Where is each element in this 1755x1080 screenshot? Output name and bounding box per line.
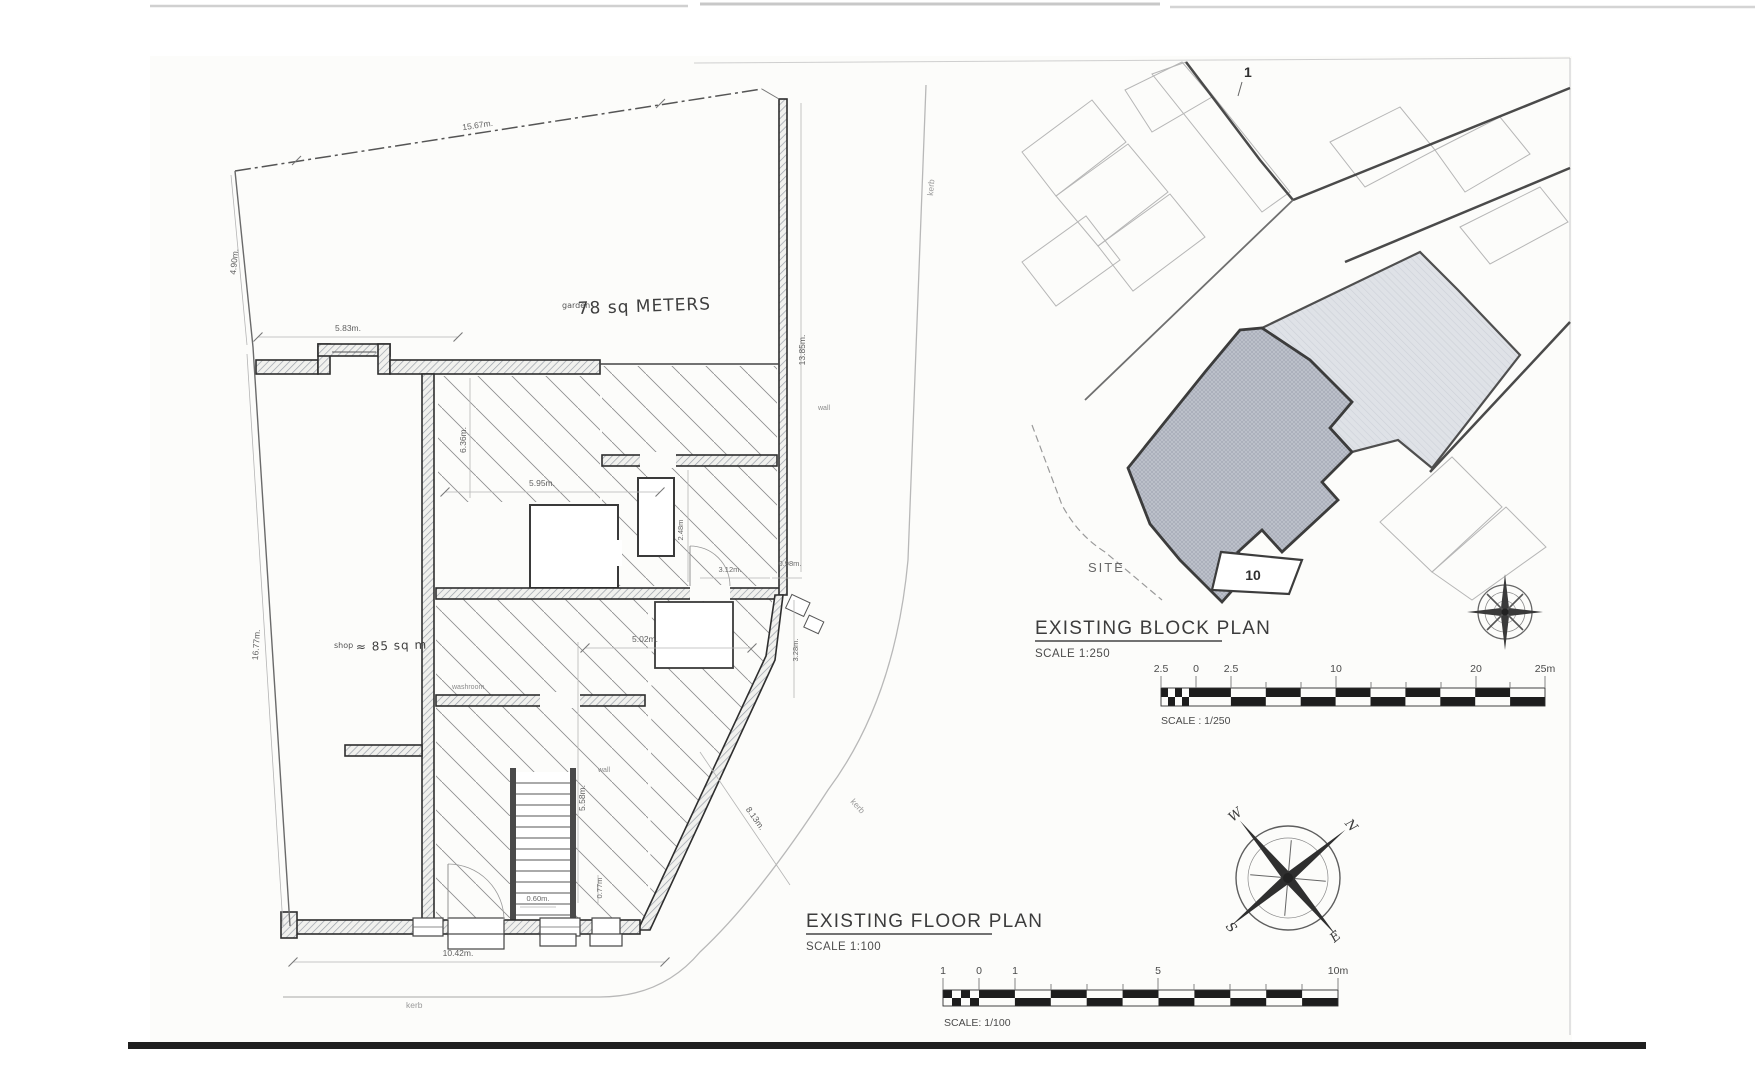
sb250-label-2: 2.5 xyxy=(1224,663,1239,675)
dim-step-width: 0.60m. xyxy=(527,894,550,903)
sb250-label-1: 0 xyxy=(1193,663,1199,675)
dim-bottom: 10.42m. xyxy=(443,948,474,958)
dim-stair-vertical: 5.58m. xyxy=(577,785,587,811)
stair-wall-note: wall xyxy=(597,767,611,774)
sheet-area xyxy=(150,56,1572,1042)
entrance-door-opening xyxy=(448,918,504,936)
scanned-drawing-sheet: 15.67m. 4.90m. 16.77m. 5.83m. 13.85m. 6.… xyxy=(0,0,1755,1080)
bottom-scan-bar xyxy=(128,1042,1646,1049)
sb100-label-0: 1 xyxy=(940,965,946,977)
sb100-label-3: 5 xyxy=(1155,965,1161,977)
house-number-label: 10 xyxy=(1245,567,1261,583)
washroom-label: washroom xyxy=(451,684,484,691)
kerb-label-bottom: kerb xyxy=(406,1000,423,1010)
front-wall-left xyxy=(256,360,318,374)
sb250-label-3: 10 xyxy=(1330,663,1342,675)
shop-area-label: ≈ 85 sq m xyxy=(356,638,428,654)
bay-right-cheek xyxy=(378,344,390,374)
entry-step-1 xyxy=(448,934,504,949)
door-gap-lower xyxy=(540,692,580,708)
dim-garden-depth: 13.85m. xyxy=(797,335,807,366)
room-a xyxy=(530,505,618,588)
sb250-label-0: 2.5 xyxy=(1154,663,1169,675)
front-wall-right xyxy=(390,360,600,374)
block-plan-scale: SCALE 1:250 xyxy=(1035,648,1110,660)
dim-rear-h1: 3.12m. xyxy=(719,565,742,574)
shop-partition-stub xyxy=(345,745,422,756)
sb250-caption: SCALE : 1/250 xyxy=(1161,715,1231,727)
floor-plan-title: EXISTING FLOOR PLAN xyxy=(806,911,1043,932)
dim-mid-horizontal: 5.95m. xyxy=(529,478,555,488)
door-gap-mid xyxy=(690,585,730,601)
dim-rear-vertical: 2.48m xyxy=(676,520,685,541)
sb100-label-1: 0 xyxy=(976,965,982,977)
wall-note: wall xyxy=(817,405,831,412)
sb100-label-4: 10m xyxy=(1328,965,1349,977)
dim-rear-room: 5.02m. xyxy=(632,634,658,644)
rear-wall-upper xyxy=(602,455,777,466)
dim-rear-h2: 0.98m. xyxy=(779,559,802,568)
dim-step-depth: 0.77m xyxy=(595,878,604,899)
dim-mid-vertical: 6.36m. xyxy=(458,427,468,453)
sb100-label-2: 1 xyxy=(1012,965,1018,977)
sb250-label-4: 20 xyxy=(1470,663,1482,675)
sb250-label-5: 25m xyxy=(1535,663,1556,675)
garden-boundary-wall xyxy=(779,99,787,595)
floor-plan-scale: SCALE 1:100 xyxy=(806,941,881,953)
drawing-canvas: 15.67m. 4.90m. 16.77m. 5.83m. 13.85m. 6.… xyxy=(0,0,1755,1080)
room-a-door-gap xyxy=(614,540,622,566)
block-plan-title: EXISTING BLOCK PLAN xyxy=(1035,618,1271,639)
plot-number-label: 1 xyxy=(1244,64,1252,80)
entry-step-2 xyxy=(540,934,576,946)
dim-garden-width: 5.83m. xyxy=(335,323,361,333)
dim-left-lower: 16.77m. xyxy=(250,629,262,660)
dim-side-vertical: 3.28m. xyxy=(791,639,800,662)
door-gap-upper xyxy=(640,452,676,468)
sb100-caption: SCALE: 1/100 xyxy=(944,1017,1011,1029)
room-c xyxy=(655,602,733,668)
site-label: SITE xyxy=(1088,560,1125,575)
room-b xyxy=(638,478,674,556)
entry-step-3 xyxy=(590,934,622,946)
shop-label-small: shop xyxy=(334,641,353,650)
door-front-2 xyxy=(592,918,620,936)
kerb-label-top: kerb xyxy=(925,179,936,197)
